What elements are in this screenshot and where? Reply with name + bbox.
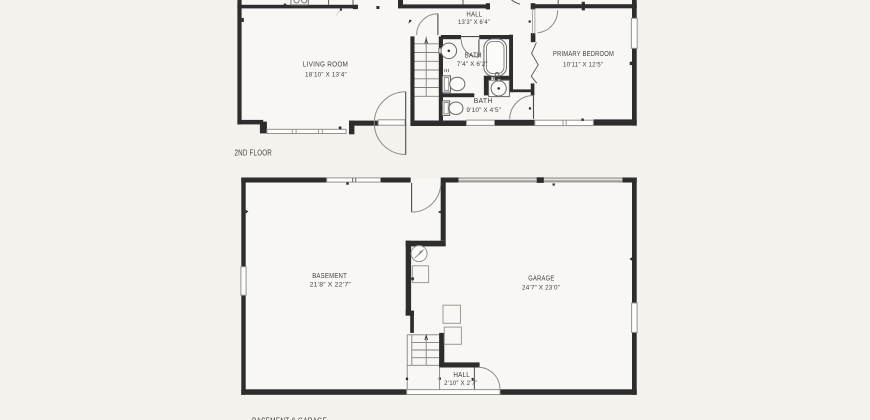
svg-text:2’10” X 2’7”: 2’10” X 2’7” <box>444 380 477 387</box>
svg-text:BATH: BATH <box>465 53 482 60</box>
svg-text:21’8” X 22’7”: 21’8” X 22’7” <box>310 281 351 288</box>
svg-text:GARAGE: GARAGE <box>528 275 554 282</box>
svg-text:13’3” X 6’4”: 13’3” X 6’4” <box>458 19 490 26</box>
svg-text:9’10” X 4’5”: 9’10” X 4’5” <box>466 107 501 114</box>
svg-text:24’7” X 23’0”: 24’7” X 23’0” <box>522 285 560 292</box>
svg-text:10’11” X 12’5”: 10’11” X 12’5” <box>563 62 603 69</box>
svg-text:HALL: HALL <box>466 11 482 18</box>
svg-text:BATH: BATH <box>474 98 493 105</box>
svg-text:7’4” X 6’2”: 7’4” X 6’2” <box>457 61 488 68</box>
svg-text:PRIMARY BEDROOM: PRIMARY BEDROOM <box>553 51 614 58</box>
svg-text:BASEMENT: BASEMENT <box>312 273 347 280</box>
svg-text:BASEMENT & GARAGE: BASEMENT & GARAGE <box>252 417 327 420</box>
svg-text:LIVING ROOM: LIVING ROOM <box>303 62 348 69</box>
svg-text:HALL: HALL <box>453 372 470 379</box>
svg-text:18’10” X 13’4”: 18’10” X 13’4” <box>305 71 347 78</box>
svg-text:2ND FLOOR: 2ND FLOOR <box>235 149 273 158</box>
